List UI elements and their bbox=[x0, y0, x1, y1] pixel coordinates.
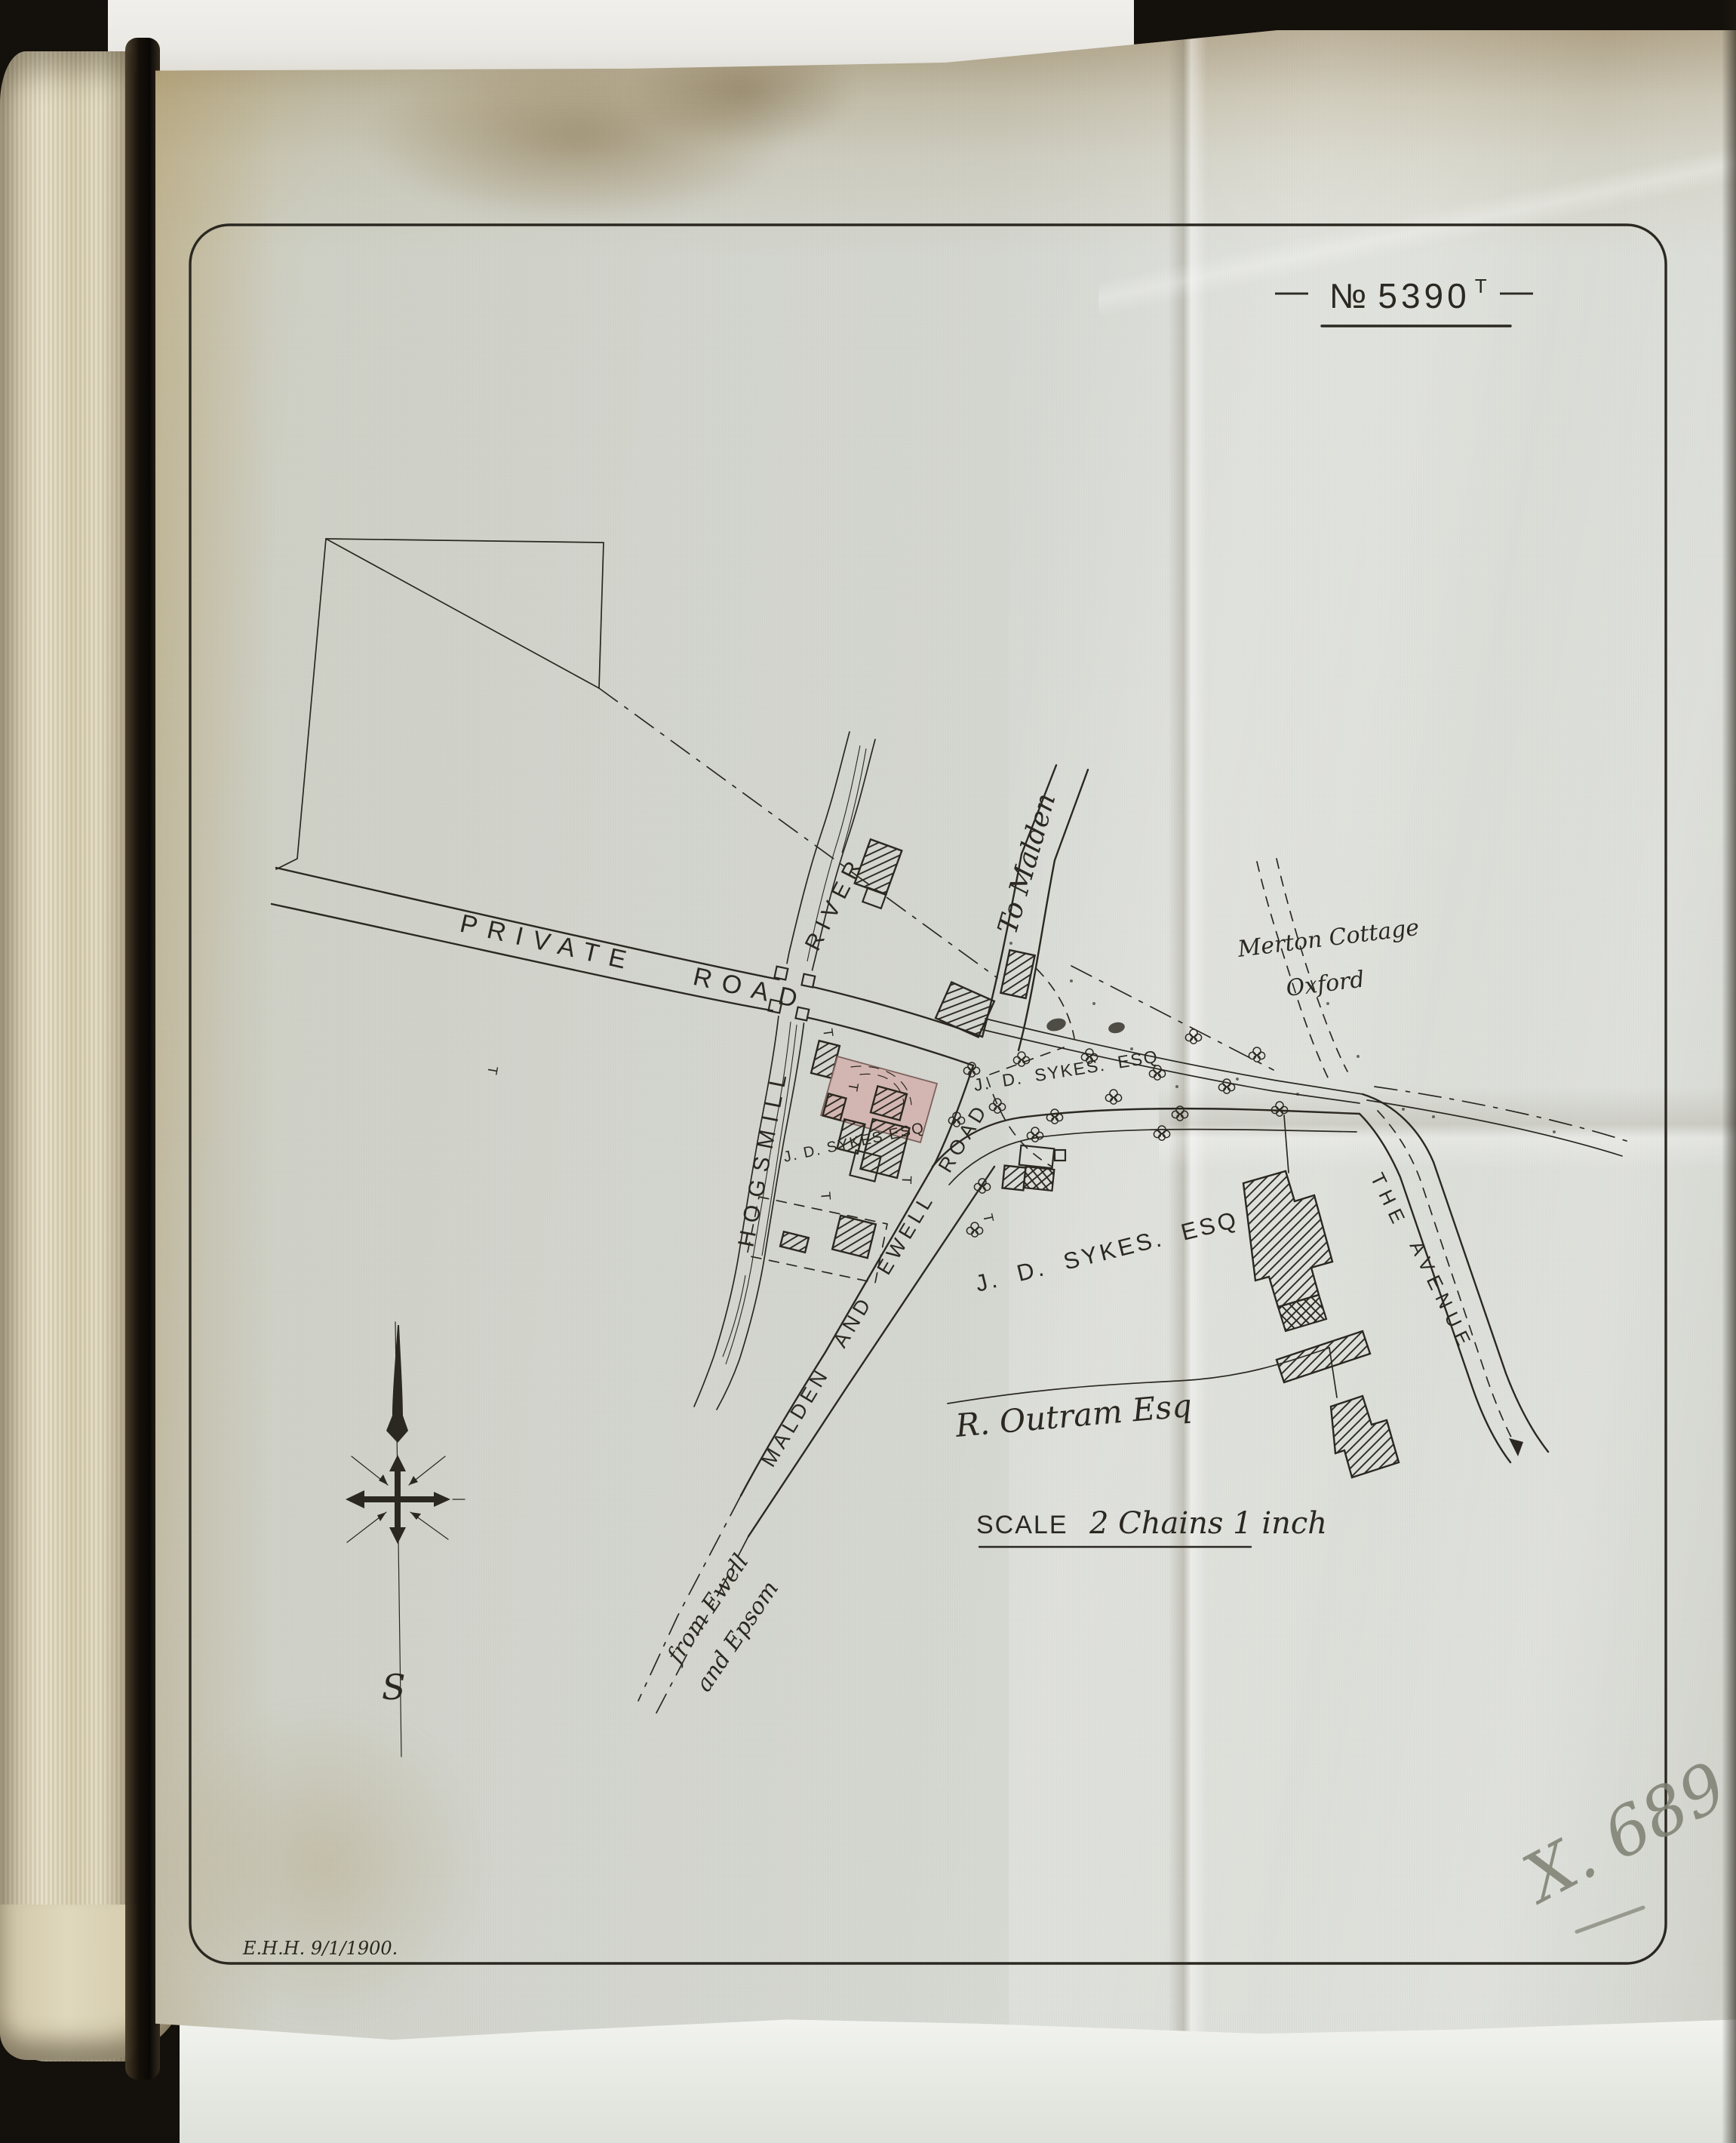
the-avenue-road bbox=[1360, 1094, 1548, 1462]
compass-south-label: S bbox=[382, 1667, 406, 1708]
building-junction-west bbox=[936, 982, 994, 1038]
label-owner-field: J. D. SYKES. ESQ bbox=[972, 1206, 1241, 1297]
svg-text:T: T bbox=[899, 1176, 914, 1185]
scale-value: 2 Chains 1 inch bbox=[1089, 1506, 1327, 1541]
label-private-road: PRIVATE ROAD bbox=[457, 909, 810, 1016]
label-outram: R. Outram Esq bbox=[954, 1387, 1194, 1444]
pencil-annotation: X. 689 bbox=[1507, 1747, 1736, 1932]
scatter-dots bbox=[1009, 942, 1556, 1133]
label-the: THE bbox=[1366, 1169, 1413, 1232]
svg-text:T: T bbox=[818, 1191, 834, 1201]
scanned-plan-page: — №5390T — bbox=[0, 0, 1736, 2143]
plan-number-dash-right: — bbox=[1500, 272, 1533, 309]
orchard-north-lane bbox=[981, 1019, 1631, 1156]
plan-number-dash-left: — bbox=[1275, 272, 1308, 309]
north-spear bbox=[386, 1325, 408, 1443]
surveyor-date: E.H.H. 9/1/1900. bbox=[242, 1938, 398, 1959]
svg-text:T: T bbox=[980, 1213, 997, 1224]
label-to-malden: To Malden bbox=[992, 790, 1062, 938]
shrub-blob bbox=[1108, 1021, 1126, 1035]
svg-text:X. 689: X. 689 bbox=[1507, 1747, 1736, 1919]
svg-text:T: T bbox=[820, 1028, 836, 1038]
building-junction-north bbox=[1000, 950, 1034, 998]
scale-note: SCALE 2 Chains 1 inch bbox=[976, 1506, 1327, 1547]
buildings-junction-south bbox=[1003, 1145, 1065, 1191]
avenue-arrowhead bbox=[1509, 1438, 1523, 1456]
building-avenue-house bbox=[1243, 1171, 1332, 1307]
label-merton-cottage: Merton Cottage bbox=[1236, 915, 1421, 963]
svg-text:T: T bbox=[484, 1065, 501, 1075]
label-avenue: AVENUE bbox=[1406, 1237, 1479, 1354]
plan-ink-drawing: — №5390T — bbox=[0, 0, 1736, 2143]
orchard-south-drive bbox=[933, 1108, 1360, 1185]
plan-number: — №5390T — bbox=[1275, 272, 1533, 326]
page-edge-shadow bbox=[1722, 0, 1736, 2143]
label-owner-orchard: J. D. SYKES. ESQ bbox=[972, 1047, 1160, 1095]
shrub-blob bbox=[1045, 1016, 1067, 1033]
compass-rose: S bbox=[346, 1322, 465, 1757]
plan-number-text: №5390T bbox=[1329, 275, 1491, 315]
building-long-range bbox=[1277, 1331, 1370, 1382]
building-southeast bbox=[1331, 1396, 1399, 1477]
label-merton-cottage-2: Oxford bbox=[1285, 966, 1366, 1001]
merton-cottage-path bbox=[1257, 859, 1347, 1078]
scale-word: SCALE bbox=[976, 1511, 1068, 1539]
